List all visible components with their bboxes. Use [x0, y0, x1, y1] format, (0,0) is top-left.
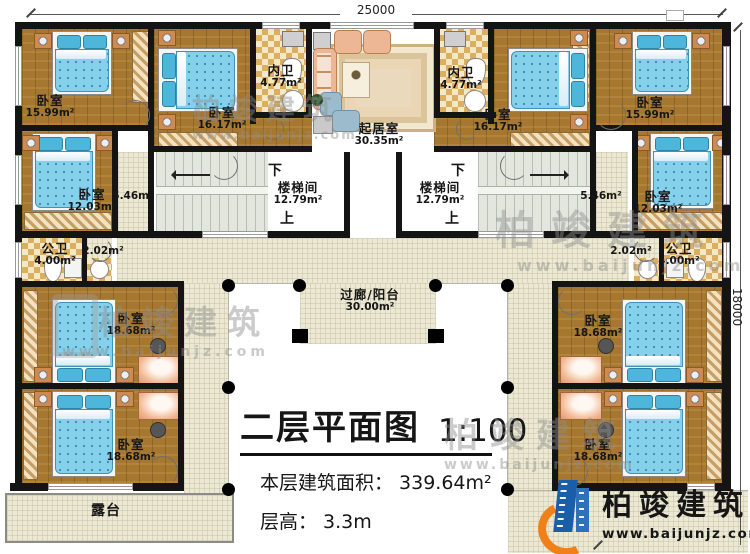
- armchair: [334, 30, 362, 54]
- stair-arrow-right: [530, 174, 564, 176]
- stair-up-mark-left: 上: [280, 208, 294, 228]
- room-area: 4.00m²: [26, 256, 84, 268]
- dimension-handle: [666, 10, 684, 21]
- wall: [396, 152, 402, 238]
- room-area: 2.02m²: [80, 246, 126, 258]
- title-block: 二层平面图 1:100 本层建筑面积：339.64m² 层高：3.3m: [240, 400, 510, 534]
- bed-pillow: [57, 368, 83, 382]
- window: [446, 22, 484, 29]
- nightstand: [34, 33, 52, 49]
- closet: [510, 132, 590, 147]
- desk: [138, 392, 180, 420]
- column-round: [501, 279, 514, 292]
- closet: [706, 392, 722, 480]
- floor-height-label: 层高：: [260, 511, 317, 533]
- hall-area-left: 2.02m²: [80, 246, 126, 258]
- desk: [560, 356, 602, 384]
- bed-pillow: [627, 368, 653, 382]
- desk: [138, 356, 180, 384]
- wall: [10, 483, 48, 491]
- room-name: 过廊/阳台: [326, 288, 414, 302]
- room-area: 15.99m²: [618, 110, 682, 122]
- room-area: 2.02m²: [608, 246, 654, 258]
- room-name: 楼梯间: [262, 181, 334, 195]
- room-label-bedroom-mid-right: 卧室 12.03m²: [626, 190, 690, 216]
- door-arc: [210, 152, 238, 180]
- sink: [90, 260, 109, 279]
- room-name: 公卫: [26, 242, 84, 256]
- window: [202, 231, 268, 238]
- bed-sheet-fold: [56, 50, 106, 59]
- room-area: 18.68m²: [566, 452, 630, 464]
- room-name: 楼梯间: [404, 181, 476, 195]
- floor-area-value: 339.64m²: [399, 472, 492, 494]
- bed-pillow: [162, 81, 176, 107]
- room-name: 卧室: [18, 94, 82, 108]
- room-area: 30.00m²: [326, 302, 414, 314]
- wall: [344, 152, 350, 238]
- stair-arrow-left: [176, 174, 210, 176]
- wall: [396, 231, 731, 238]
- nightstand: [34, 391, 52, 407]
- stair-rail-left: [156, 187, 268, 194]
- door-arc: [150, 287, 178, 315]
- room-label-public-bath-right: 公卫 4.00m²: [650, 242, 708, 268]
- plan-title: 二层平面图: [240, 400, 420, 449]
- bed-pillow: [65, 137, 91, 151]
- dimension-right-value: 18000: [730, 276, 744, 338]
- column-round: [501, 381, 514, 394]
- room-label-public-bath-left: 公卫 4.00m²: [26, 242, 84, 268]
- walkway-floor: [117, 238, 629, 283]
- bed-sheet-fold: [636, 50, 686, 59]
- wall: [632, 128, 638, 238]
- room-name: 内卫: [252, 64, 310, 78]
- bed-sheet-fold: [177, 52, 186, 106]
- closet: [706, 290, 722, 382]
- nightstand: [692, 33, 710, 49]
- floor-height-value: 3.3m: [323, 511, 372, 533]
- bed-pillow: [85, 368, 111, 382]
- wall: [112, 128, 118, 238]
- bed-sheet-fold: [626, 356, 680, 365]
- nightstand: [604, 391, 622, 407]
- coffee-table: [342, 62, 370, 98]
- nightstand: [686, 367, 704, 383]
- bed-pillow: [571, 53, 585, 79]
- column-round: [222, 279, 235, 292]
- column-round: [429, 279, 442, 292]
- room-label-stairwell-left: 楼梯间 12.79m²: [262, 181, 334, 207]
- window: [48, 483, 133, 490]
- room-area: 5.46m²: [578, 191, 624, 203]
- column-round: [222, 483, 235, 496]
- wall: [15, 281, 184, 287]
- corridor-area-right: 5.46m²: [578, 191, 624, 203]
- nightstand: [570, 114, 588, 130]
- room-area: 15.99m²: [18, 108, 82, 120]
- room-name: 内卫: [432, 66, 490, 80]
- nightstand: [112, 33, 130, 49]
- room-label-living-room: 起居室 30.35m²: [345, 122, 413, 148]
- bed-pillow: [57, 395, 83, 409]
- room-area: 4.77m²: [252, 78, 310, 90]
- sink: [282, 90, 304, 112]
- bed-pillow: [655, 368, 681, 382]
- nightstand: [570, 30, 588, 46]
- room-area: 12.79m²: [404, 195, 476, 207]
- room-name: 露台: [78, 504, 134, 520]
- bed-pillow: [637, 35, 661, 49]
- column-round: [293, 279, 306, 292]
- room-name: 卧室: [60, 188, 124, 202]
- room-label-bedroom-top-center-left: 卧室 16.17m²: [190, 106, 254, 132]
- bed: [622, 391, 686, 477]
- walkway-strip-right: [508, 283, 552, 493]
- wall: [15, 383, 184, 389]
- desk: [560, 392, 602, 420]
- bed: [52, 31, 112, 95]
- window: [478, 231, 544, 238]
- room-name: 公卫: [650, 242, 708, 256]
- room-label-bedroom-top-right: 卧室 15.99m²: [618, 96, 682, 122]
- room-label-bedroom-top-center-right: 卧室 16.17m²: [466, 108, 530, 134]
- room-label-inner-bath-right: 内卫 4.77m²: [432, 66, 490, 92]
- bed-pillow: [655, 395, 681, 409]
- room-name: 卧室: [626, 190, 690, 204]
- floor-area-label: 本层建筑面积：: [260, 472, 393, 494]
- door-arc: [500, 152, 528, 180]
- wall: [15, 231, 350, 238]
- room-area: 30.35m²: [345, 136, 413, 148]
- stair-up-mark-right: 上: [445, 208, 459, 228]
- dimension-top-value: 25000: [340, 3, 412, 17]
- room-area: 18.68m²: [566, 328, 630, 340]
- nightstand: [614, 33, 632, 49]
- wall: [552, 383, 731, 389]
- column-square: [292, 329, 308, 343]
- stair-down-mark-right: 下: [451, 160, 465, 180]
- nightstand: [158, 30, 176, 46]
- room-name: 卧室: [99, 438, 163, 452]
- room-area: 4.77m²: [432, 80, 490, 92]
- door-arc: [262, 118, 284, 140]
- column-round: [222, 381, 235, 394]
- stair-arrowhead-right: [564, 170, 574, 180]
- bed-sheet-fold: [559, 52, 568, 106]
- door-arc: [558, 287, 586, 315]
- brand-logo-icon: [538, 478, 596, 544]
- bed-pillow: [627, 395, 653, 409]
- bed-pillow: [37, 137, 63, 151]
- bed: [622, 299, 686, 385]
- room-label-bedroom-bottom-left-2: 卧室 18.68m²: [99, 438, 163, 464]
- column-square: [428, 329, 444, 343]
- room-label-bedroom-mid-left: 卧室 12.03m²: [60, 188, 124, 214]
- nightstand: [22, 135, 40, 151]
- closet: [24, 212, 112, 230]
- bed-sheet-fold: [626, 410, 680, 419]
- brand-name: 柏竣建筑: [602, 480, 750, 524]
- nightstand: [116, 367, 134, 383]
- bed-pillow: [683, 137, 709, 151]
- nightstand: [686, 391, 704, 407]
- bed: [158, 48, 238, 112]
- room-name: 卧室: [99, 312, 163, 326]
- bed: [52, 391, 116, 477]
- closet: [158, 132, 238, 147]
- plant: [311, 94, 323, 106]
- bed-pillow: [655, 137, 681, 151]
- room-label-stairwell-right: 楼梯间 12.79m²: [404, 181, 476, 207]
- room-area: 16.17m²: [190, 120, 254, 132]
- window: [330, 22, 414, 29]
- room-label-bedroom-bottom-left-1: 卧室 18.68m²: [99, 312, 163, 338]
- nightstand: [34, 367, 52, 383]
- brand-logo: 柏竣建筑 www.baijunjz.com: [538, 478, 750, 544]
- floor-plan-canvas: 卧室 15.99m² 卧室 15.99m² 卧室 16.17m² 卧室 16.1…: [0, 0, 750, 554]
- desk-chair: [150, 422, 166, 438]
- desk-chair: [598, 338, 614, 354]
- window: [262, 22, 300, 29]
- plan-scale: 1:100: [438, 413, 527, 449]
- door-arc: [120, 100, 150, 130]
- desk-chair: [150, 338, 166, 354]
- room-area: 12.79m²: [262, 195, 334, 207]
- room-area: 4.00m²: [650, 256, 708, 268]
- room-area: 12.03m²: [626, 204, 690, 216]
- wall: [250, 112, 312, 118]
- brand-url: www.baijunjz.com: [602, 526, 750, 542]
- bed-pillow: [85, 395, 111, 409]
- bed-sheet-fold: [654, 152, 708, 161]
- room-label-inner-bath-left: 内卫 4.77m²: [252, 64, 310, 90]
- room-name: 卧室: [466, 108, 530, 122]
- window: [15, 242, 22, 278]
- room-area: 18.68m²: [99, 452, 163, 464]
- room-area: 12.03m²: [60, 202, 124, 214]
- window: [15, 155, 22, 205]
- stool: [313, 116, 333, 134]
- stair-down-mark-left: 下: [268, 160, 282, 180]
- bed-pillow: [571, 81, 585, 107]
- room-label-balcony: 过廊/阳台 30.00m²: [326, 288, 414, 314]
- room-label-terrace: 露台: [78, 504, 134, 520]
- wall: [148, 146, 312, 152]
- bed: [632, 31, 692, 95]
- nightstand: [116, 391, 134, 407]
- window: [723, 155, 730, 205]
- stair-arrowhead-left: [166, 170, 176, 180]
- nightstand: [604, 367, 622, 383]
- watermark-icon: [52, 294, 98, 358]
- bed-sheet-fold: [36, 152, 90, 161]
- room-name: 起居室: [345, 122, 413, 136]
- brand-logo-text: 柏竣建筑 www.baijunjz.com: [602, 480, 750, 542]
- bed: [508, 48, 588, 112]
- window: [723, 242, 730, 278]
- wall: [552, 281, 731, 287]
- bed-pillow: [83, 35, 107, 49]
- room-name: 卧室: [190, 106, 254, 120]
- room-area: 18.68m²: [99, 326, 163, 338]
- room-label-bedroom-bottom-right-2: 卧室 18.68m²: [566, 438, 630, 464]
- room-label-bedroom-bottom-right-1: 卧室 18.68m²: [566, 314, 630, 340]
- desk-chair: [598, 422, 614, 438]
- bed-sheet-fold: [56, 410, 110, 419]
- bed-pillow: [162, 53, 176, 79]
- bath-cabinet: [444, 31, 466, 47]
- bath-cabinet: [282, 31, 304, 47]
- hall-area-right: 2.02m²: [608, 246, 654, 258]
- room-name: 卧室: [566, 314, 630, 328]
- armchair: [363, 30, 391, 54]
- window: [723, 46, 730, 106]
- stair-rail-right: [478, 187, 590, 194]
- room-name: 卧室: [566, 438, 630, 452]
- bed-pillow: [663, 35, 687, 49]
- title-underline: [240, 453, 492, 456]
- room-name: 卧室: [618, 96, 682, 110]
- bed-pillow: [57, 35, 81, 49]
- room-label-bedroom-top-left: 卧室 15.99m²: [18, 94, 82, 120]
- room-area: 16.17m²: [466, 122, 530, 134]
- nightstand: [158, 114, 176, 130]
